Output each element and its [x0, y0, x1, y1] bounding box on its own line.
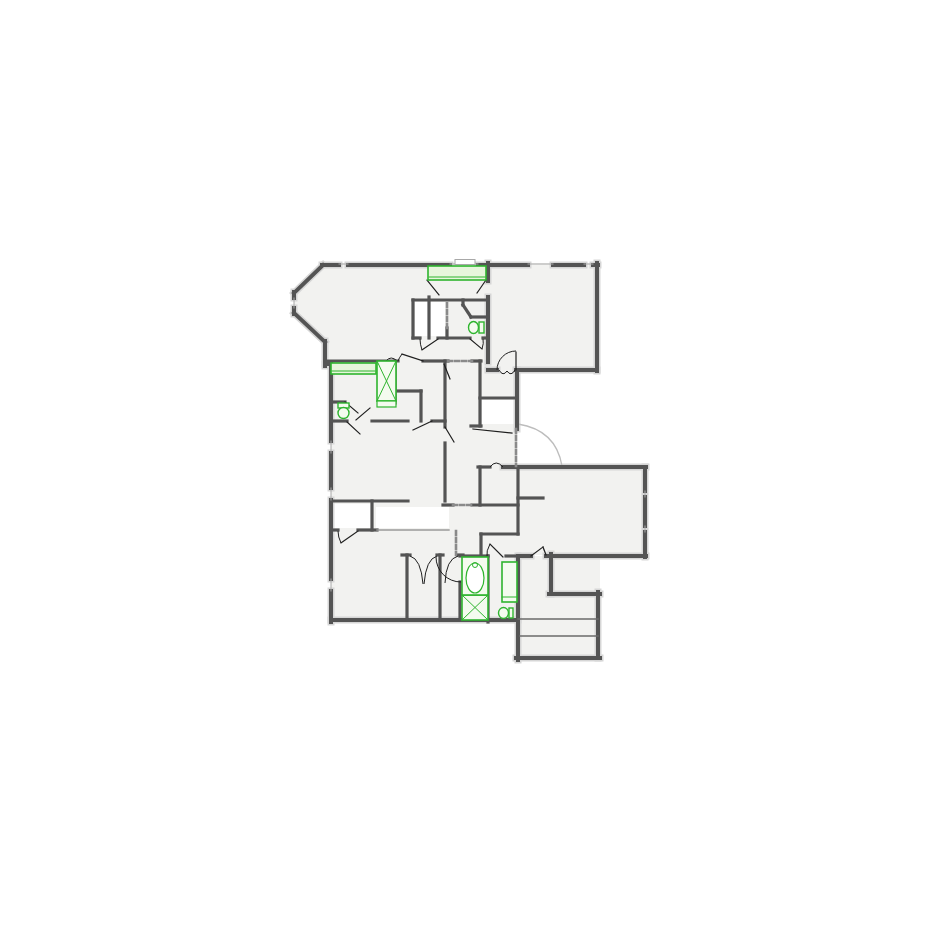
floor-plan-drawing	[0, 0, 925, 925]
toilet-lower-bath-tank	[509, 608, 513, 618]
linen-cabinet-upper-base	[377, 401, 396, 407]
counter-left	[331, 363, 376, 374]
toilet-lower-bath-bowl	[499, 608, 509, 619]
kitchen-counter-top	[428, 266, 486, 280]
bath-cabinet	[502, 562, 517, 602]
toilet-upper-bath-bowl	[469, 322, 479, 334]
toilet-upper-bath-tank	[479, 322, 484, 333]
floor-patch-vestibule	[482, 400, 516, 424]
toilet-left-bath-bowl	[338, 408, 349, 419]
floor-patch-lower-hall	[376, 507, 449, 528]
room-fill-stairwell	[518, 556, 600, 658]
door-swing-arc-large	[518, 424, 562, 466]
floor-patch-closet-small	[334, 504, 371, 528]
floor-plan-page	[0, 0, 925, 925]
patio-door-swing	[518, 424, 562, 466]
window-bump	[455, 260, 475, 265]
room-fill-middle-right-room	[518, 467, 645, 555]
